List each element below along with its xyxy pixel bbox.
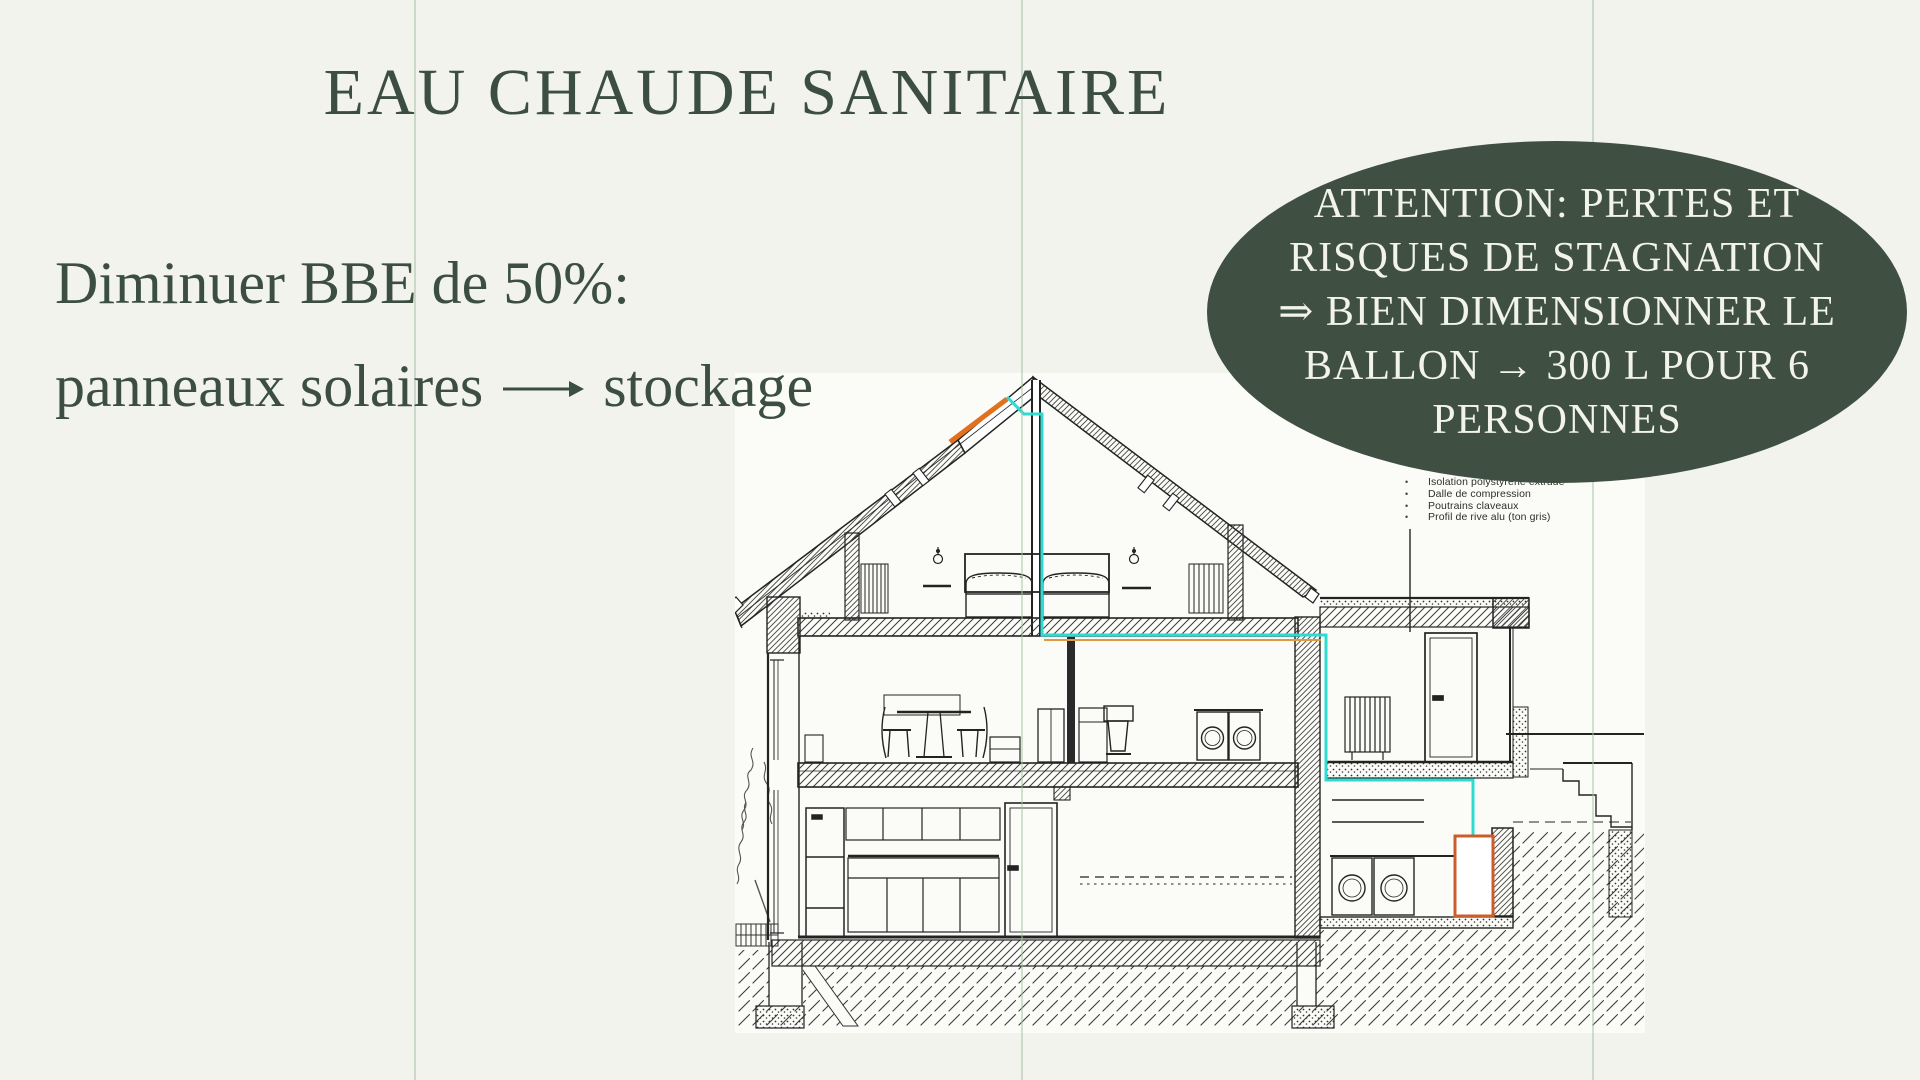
long-arrow-icon: [501, 378, 585, 400]
washer-2: [1229, 712, 1260, 760]
slide: •Isolation polystyrène extrudé •Dalle de…: [0, 0, 1920, 1080]
annotation-text: Dalle de compression: [1428, 488, 1531, 500]
slab-bottom: [772, 937, 1320, 966]
chair-right: [957, 707, 987, 758]
radiator-attic-right: [1189, 564, 1223, 613]
garden-level: [806, 803, 1292, 937]
knee-wall-right: [1228, 525, 1243, 620]
annotation-row: •Poutrains claveaux: [1405, 500, 1565, 512]
pendant-lamp-left: [934, 547, 943, 564]
toilet: [1104, 706, 1133, 754]
washer-1: [1197, 712, 1228, 760]
guide-line-1: [414, 0, 416, 1080]
radiator-attic-left: [861, 564, 888, 613]
garden-door: [1005, 803, 1057, 937]
annotation-text: Profil de rive alu (ton gris): [1428, 511, 1551, 523]
side-unit: [990, 737, 1020, 762]
kitchen-cabinets: [846, 808, 1000, 932]
wall-cabinet: [805, 735, 823, 762]
guide-line-2: [1021, 0, 1023, 1080]
washing-machine-1: [1332, 858, 1372, 915]
pendant-lamp-right: [1130, 547, 1139, 564]
callout-ellipse: ATTENTION: PERTES ET RISQUES DE STAGNATI…: [1207, 141, 1907, 483]
callout-line: RISQUES DE STAGNATION: [1289, 231, 1825, 285]
fridge: [806, 808, 844, 937]
cabinet: [1079, 708, 1107, 762]
annotation-row: •Profil de rive alu (ton gris): [1405, 511, 1565, 523]
slab-middle: [798, 763, 1298, 800]
annotation-text: Poutrains claveaux: [1428, 500, 1519, 512]
knee-wall-left: [845, 533, 859, 620]
body-text-line-2-after: stockage: [603, 355, 813, 417]
hot-water-tank: [1455, 836, 1493, 916]
callout-line: ⇒ BIEN DIMENSIONNER LE: [1278, 285, 1836, 339]
slab-attic: [798, 612, 1298, 636]
page-title: EAU CHAUDE SANITAIRE: [324, 55, 1171, 131]
callout-line: PERSONNES: [1432, 393, 1681, 447]
partition-wall: [1067, 637, 1075, 763]
callout-line: BALLON → 300 L POUR 6: [1304, 339, 1810, 393]
body-text-line-2: panneaux solaires stockage: [55, 355, 813, 417]
drawing-annotations: •Isolation polystyrène extrudé •Dalle de…: [1405, 476, 1565, 523]
callout-line: ATTENTION: PERTES ET: [1314, 177, 1800, 231]
washing-machine-2: [1374, 858, 1414, 915]
body-text-line-1: Diminuer BBE de 50%:: [55, 252, 630, 314]
radiator-annex: [1345, 697, 1390, 760]
garden-plants: [736, 748, 778, 946]
attic: [845, 525, 1243, 620]
annotation-row: •Dalle de compression: [1405, 488, 1565, 500]
body-text-line-2-before: panneaux solaires: [55, 355, 483, 417]
annex-door: [1425, 633, 1477, 762]
middle-floor: [805, 637, 1263, 763]
bed-right: [1043, 573, 1109, 617]
